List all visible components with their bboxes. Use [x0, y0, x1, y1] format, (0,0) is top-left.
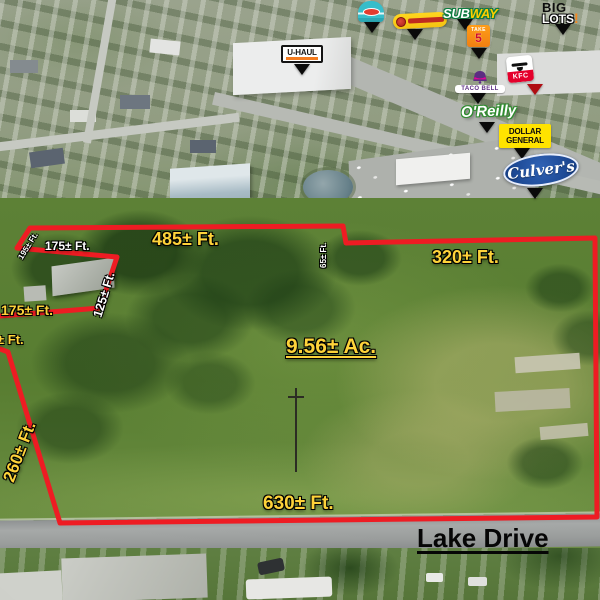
dimension-label-top-jog: 65± Ft. — [319, 243, 328, 268]
map-pointer-icon — [294, 64, 310, 75]
culvers-logo-text: Culver's — [506, 157, 575, 183]
kfc-logo: KFC — [506, 55, 535, 84]
taco-bell-logo: TACO BELL — [455, 70, 505, 93]
oreilly-logo: O'Reilly — [461, 102, 517, 121]
uhaul-logo-text: U-HAUL — [287, 49, 316, 56]
dimension-label-top-right: 320± Ft. — [432, 247, 499, 268]
taco-bell-logo-text: TACO BELL — [455, 85, 505, 93]
map-pointer-icon — [471, 48, 487, 59]
restaurant-logo-yellow-banner — [393, 12, 448, 30]
aerial-property-photo: 485± Ft. 320± Ft. 630± Ft. 260± Ft. 175±… — [0, 0, 600, 600]
dimension-label-notch-bottom: 175± Ft. — [45, 239, 90, 253]
street-name-label: Lake Drive — [417, 523, 549, 554]
restaurant-logo-teal — [358, 1, 384, 22]
map-pointer-icon — [527, 84, 543, 95]
restaurant-logo-red-oval — [363, 8, 380, 16]
subway-logo-way: WAY — [470, 6, 498, 21]
dollar-general-logo-line2: GENERAL — [506, 136, 544, 145]
take-5-logo-five: 5 — [475, 33, 482, 44]
taco-bell-bell-icon — [471, 70, 489, 84]
dollar-general-logo: DOLLAR GENERAL — [499, 124, 551, 148]
take-5-logo: TAKE 5 — [467, 25, 490, 47]
big-lots-logo: BIG LOTS! — [542, 2, 579, 25]
restaurant-logo-emblem — [396, 16, 407, 27]
map-pointer-icon — [364, 22, 380, 33]
map-pointer-icon — [407, 29, 423, 40]
dimension-label-bottom: 630± Ft. — [263, 493, 334, 515]
uhaul-logo-orange-bar — [286, 57, 318, 60]
parcel-area-label: 9.56± Ac. — [286, 335, 376, 359]
dimension-label-left-edge-partial: ± Ft. — [0, 332, 24, 347]
dimension-label-top: 485± Ft. — [152, 229, 219, 250]
map-pointer-icon — [527, 188, 543, 199]
big-lots-logo-bang: ! — [574, 10, 579, 26]
map-pointer-icon — [555, 24, 571, 35]
uhaul-logo: U-HAUL — [281, 45, 323, 63]
dollar-general-logo-line1: DOLLAR — [509, 127, 541, 136]
restaurant-logo-red-text-bar — [408, 17, 444, 24]
dimension-label-left-segment: 175± Ft. — [1, 302, 53, 318]
map-pointer-icon — [479, 122, 495, 133]
